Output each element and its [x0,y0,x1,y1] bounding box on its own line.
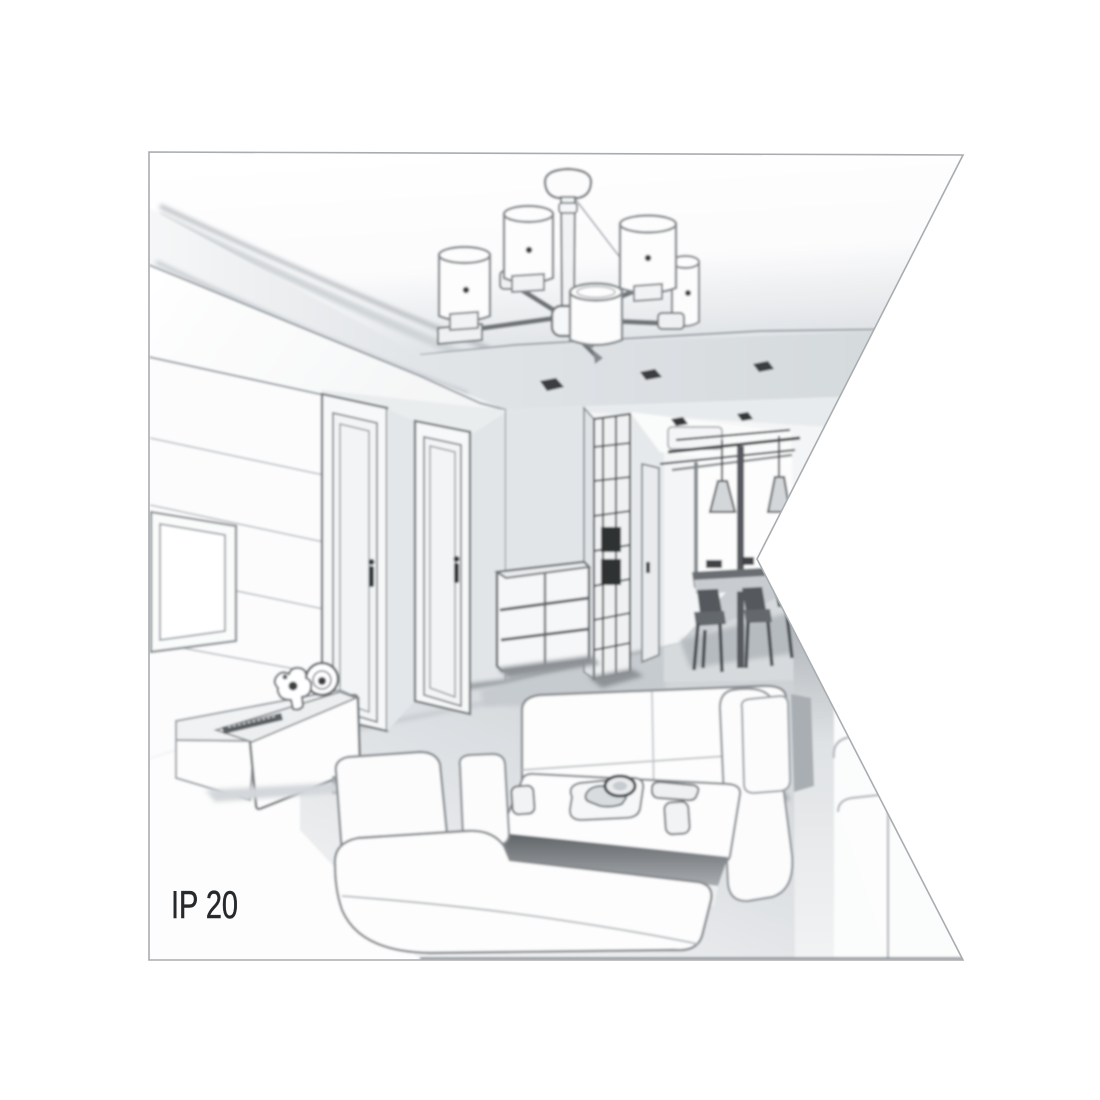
svg-text:IP 20: IP 20 [171,884,238,927]
